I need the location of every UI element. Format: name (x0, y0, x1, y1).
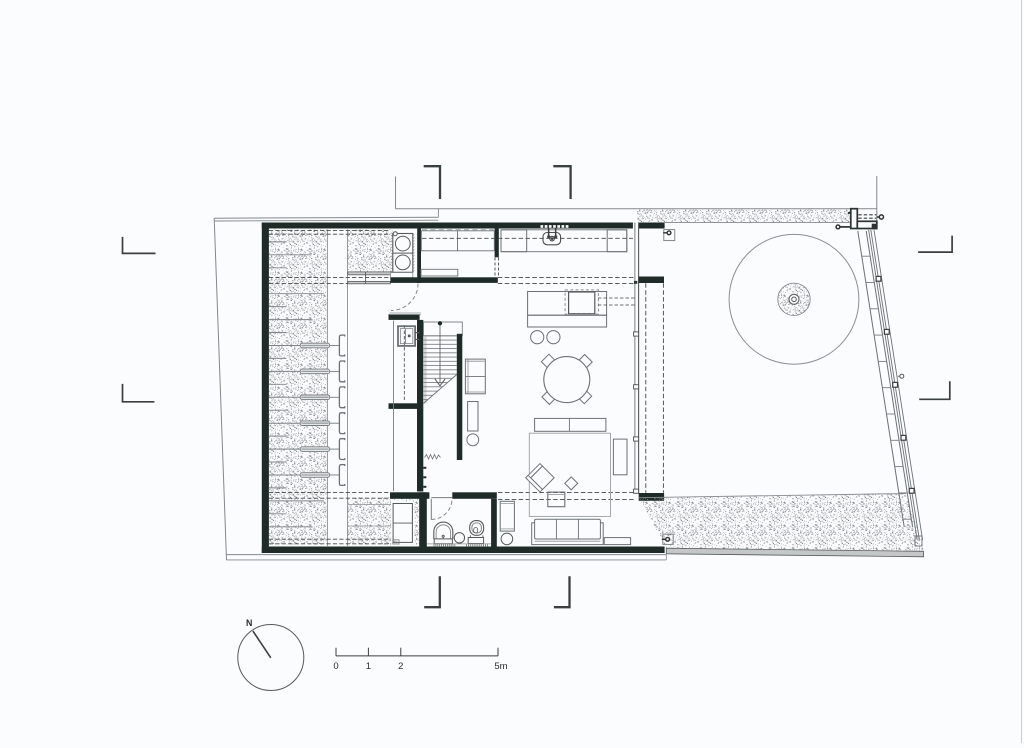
svg-text:0: 0 (333, 661, 338, 672)
svg-text:1: 1 (366, 661, 371, 672)
svg-text:5m: 5m (494, 661, 507, 672)
svg-text:2: 2 (398, 661, 403, 672)
svg-text:N: N (246, 618, 252, 628)
